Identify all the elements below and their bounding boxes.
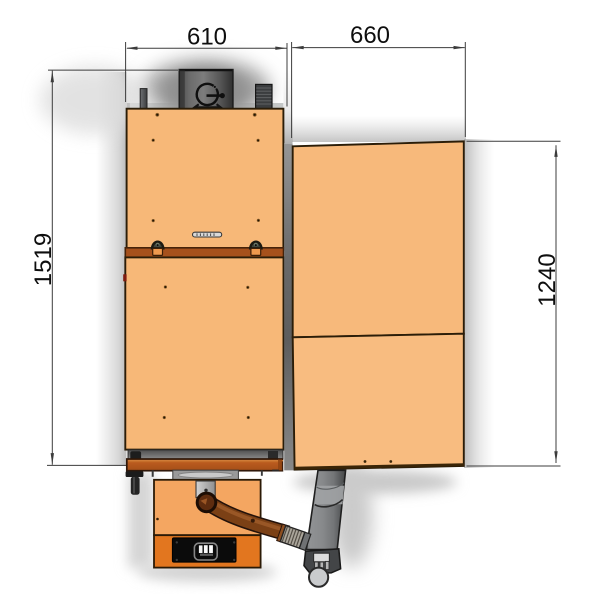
svg-text:660: 660 [350,22,390,49]
svg-text:1519: 1519 [30,233,57,286]
svg-text:1240: 1240 [534,253,561,306]
svg-text:610: 610 [187,24,227,51]
